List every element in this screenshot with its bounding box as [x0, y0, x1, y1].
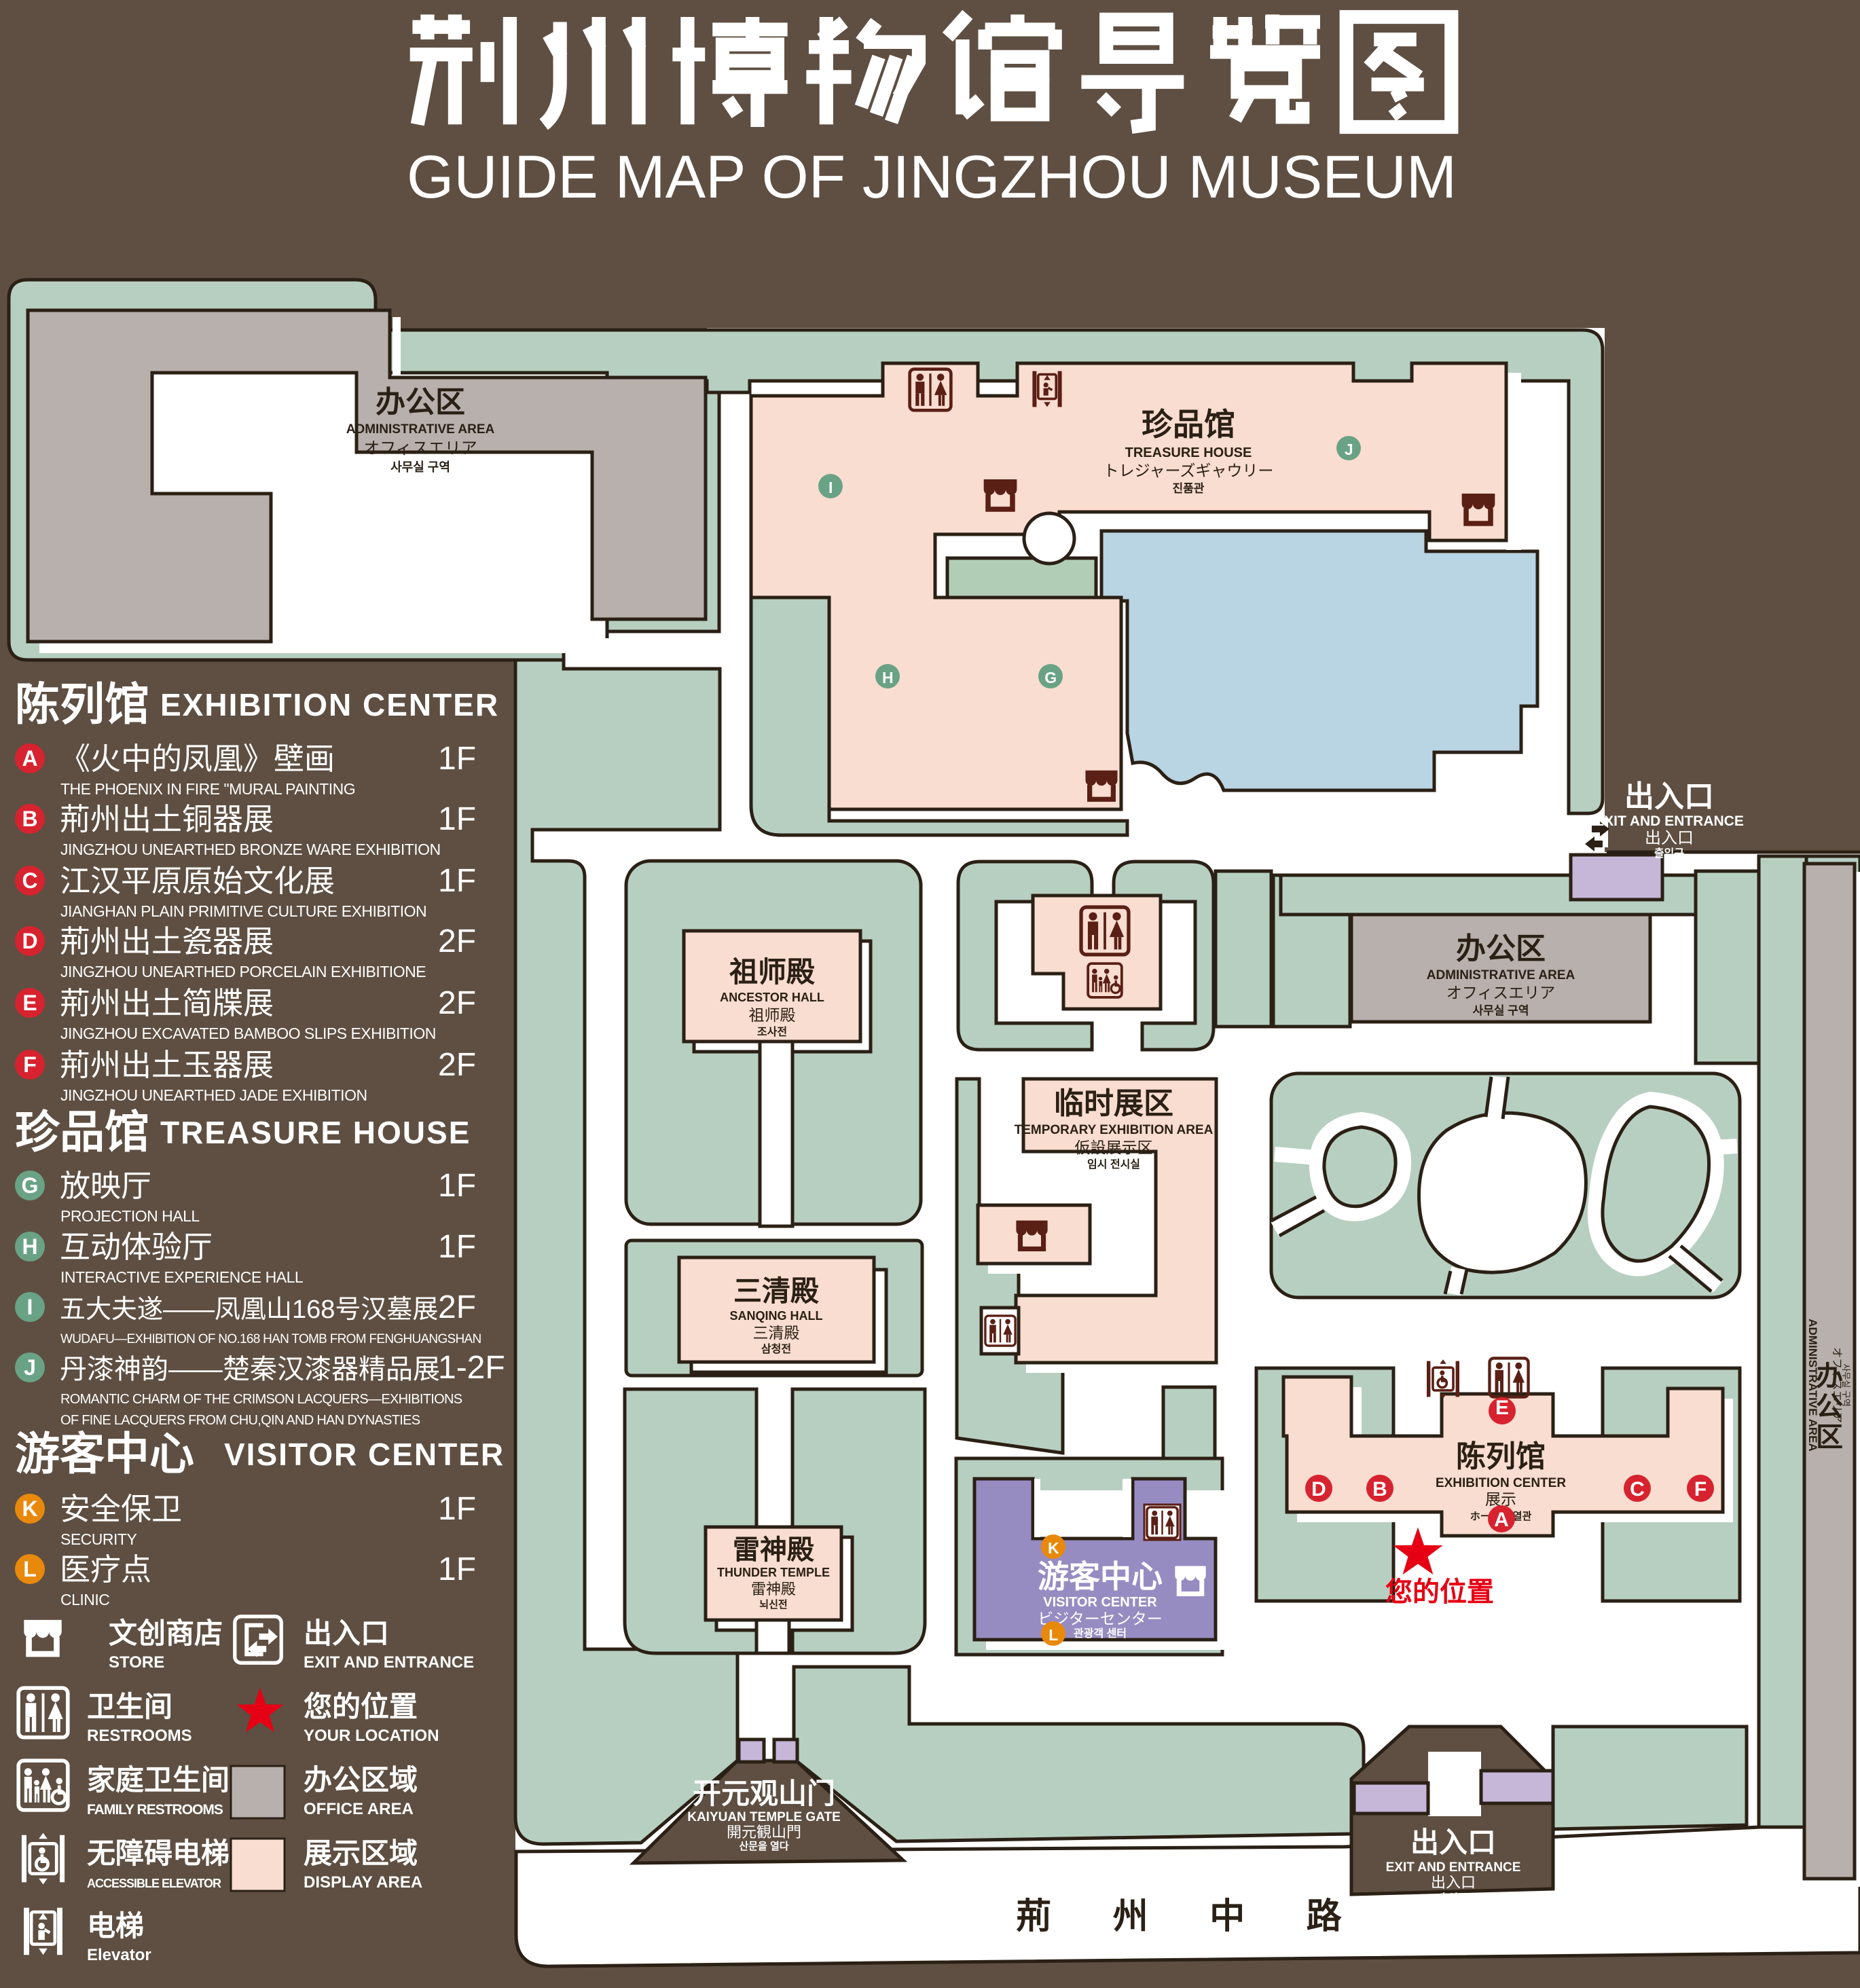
svg-text:祖师殿: 祖师殿	[729, 956, 815, 988]
svg-text:GUIDE MAP OF JINGZHOU MUSEUM: GUIDE MAP OF JINGZHOU MUSEUM	[407, 143, 1457, 210]
svg-text:您的位置: 您的位置	[1385, 1577, 1494, 1607]
svg-text:2F: 2F	[438, 985, 476, 1021]
svg-text:游客中心: 游客中心	[15, 1429, 194, 1479]
svg-text:JINGZHOU UNEARTHED JADE EXHIBI: JINGZHOU UNEARTHED JADE EXHIBITION	[60, 1086, 367, 1104]
svg-text:H: H	[882, 669, 893, 686]
svg-text:출입구: 출입구	[1654, 847, 1684, 860]
svg-text:RESTROOMS: RESTROOMS	[87, 1727, 192, 1745]
svg-text:ADMINISTRATIVE AREA: ADMINISTRATIVE AREA	[1806, 1319, 1819, 1452]
svg-text:オフィスエリア: オフィスエリア	[1446, 984, 1556, 1001]
svg-text:L: L	[23, 1557, 37, 1581]
svg-text:J: J	[24, 1355, 36, 1380]
svg-text:D: D	[22, 929, 37, 953]
svg-text:荊 州 中 路: 荊 州 中 路	[1016, 1897, 1367, 1936]
svg-text:荊州出土简牒展: 荊州出土简牒展	[60, 986, 274, 1020]
svg-text:F: F	[23, 1052, 37, 1077]
svg-text:KAIYUAN TEMPLE GATE: KAIYUAN TEMPLE GATE	[687, 1810, 841, 1824]
svg-text:B: B	[22, 807, 37, 831]
svg-text:オフィスエリア: オフィスエリア	[1831, 1347, 1842, 1423]
svg-text:区: 区	[1816, 1422, 1843, 1452]
svg-text:임시 전시실: 임시 전시실	[1087, 1158, 1140, 1171]
svg-text:江汉平原原始文化展: 江汉平原原始文化展	[60, 864, 335, 898]
svg-text:ADMINISTRATIVE AREA: ADMINISTRATIVE AREA	[346, 422, 495, 437]
svg-text:仮設展示区: 仮設展示区	[1075, 1139, 1153, 1156]
svg-text:出入口: 出入口	[1645, 829, 1694, 847]
svg-text:I: I	[828, 479, 833, 496]
svg-text:ANCESTOR HALL: ANCESTOR HALL	[720, 991, 824, 1004]
svg-text:荊州出土铜器展: 荊州出土铜器展	[60, 802, 274, 836]
svg-text:陈列馆: 陈列馆	[1456, 1440, 1546, 1473]
svg-text:2F: 2F	[438, 1289, 476, 1325]
svg-text:EXIT AND ENTRANCE: EXIT AND ENTRANCE	[1386, 1860, 1521, 1875]
svg-text:ROMANTIC CHARM OF THE CRIMSON: ROMANTIC CHARM OF THE CRIMSON LACQUERS—E…	[60, 1392, 462, 1407]
svg-text:开元观山门: 开元观山门	[693, 1778, 835, 1809]
svg-text:临时展区: 临时展区	[1054, 1087, 1173, 1120]
svg-text:FAMILY RESTROOMS: FAMILY RESTROOMS	[87, 1802, 223, 1818]
svg-text:WUDAFU—EXHIBITION OF NO.168 HA: WUDAFU—EXHIBITION OF NO.168 HAN TOMB FRO…	[60, 1332, 481, 1346]
svg-text:JIANGHAN PLAIN PRIMITIVE CULTU: JIANGHAN PLAIN PRIMITIVE CULTURE EXHIBIT…	[60, 902, 426, 920]
svg-text:TREASURE HOUSE: TREASURE HOUSE	[160, 1115, 471, 1150]
svg-text:산문을 열다: 산문을 열다	[739, 1841, 788, 1852]
svg-text:出入口: 出入口	[1624, 780, 1714, 813]
svg-text:出入口: 出入口	[304, 1617, 389, 1649]
svg-text:电梯: 电梯	[87, 1910, 144, 1942]
svg-text:荊州出土瓷器展: 荊州出土瓷器展	[60, 924, 274, 959]
svg-text:雷神殿: 雷神殿	[751, 1581, 796, 1598]
svg-text:JINGZHOU UNEARTHED BRONZE WARE: JINGZHOU UNEARTHED BRONZE WARE EXHIBITIO…	[60, 841, 441, 858]
svg-text:无障碍电梯: 无障碍电梯	[87, 1837, 230, 1869]
svg-text:E: E	[22, 991, 37, 1015]
svg-text:SECURITY: SECURITY	[60, 1530, 136, 1548]
svg-text:J: J	[1345, 441, 1353, 458]
svg-text:진품관: 진품관	[1173, 482, 1205, 495]
svg-text:オフィスエリア: オフィスエリア	[363, 439, 477, 458]
svg-text:JINGZHOU EXCAVATED BAMBOO SLIP: JINGZHOU EXCAVATED BAMBOO SLIPS EXHIBITI…	[60, 1025, 436, 1042]
svg-text:ADMINISTRATIVE AREA: ADMINISTRATIVE AREA	[1427, 968, 1575, 982]
svg-text:VISITOR CENTER: VISITOR CENTER	[224, 1437, 505, 1472]
svg-text:YOUR LOCATION: YOUR LOCATION	[304, 1727, 439, 1745]
svg-text:1F: 1F	[438, 741, 476, 777]
svg-text:B: B	[1372, 1478, 1387, 1501]
svg-text:G: G	[1044, 669, 1056, 686]
svg-text:安全保卫: 安全保卫	[60, 1492, 182, 1526]
svg-text:1F: 1F	[438, 1229, 476, 1265]
svg-text:Elevator: Elevator	[87, 1946, 151, 1964]
svg-text:祖师殿: 祖师殿	[749, 1006, 796, 1024]
svg-text:荊州出土玉器展: 荊州出土玉器展	[60, 1048, 274, 1082]
svg-text:三清殿: 三清殿	[733, 1275, 819, 1307]
svg-text:JINGZHOU UNEARTHED PORCELAIN E: JINGZHOU UNEARTHED PORCELAIN EXHIBITIONE	[60, 963, 426, 980]
svg-text:1F: 1F	[438, 1168, 476, 1204]
svg-text:관광객 센터: 관광객 센터	[1074, 1627, 1127, 1640]
svg-text:三清殿: 三清殿	[753, 1324, 800, 1342]
svg-text:您的位置: 您的位置	[304, 1691, 418, 1723]
svg-text:INTERACTIVE EXPERIENCE HALL: INTERACTIVE EXPERIENCE HALL	[60, 1268, 304, 1286]
svg-text:卫生间: 卫生间	[87, 1691, 172, 1723]
svg-text:STORE: STORE	[109, 1653, 164, 1672]
svg-text:1F: 1F	[438, 863, 476, 899]
svg-text:A: A	[22, 746, 37, 771]
svg-text:E: E	[1495, 1397, 1509, 1419]
svg-text:丹漆神韵——楚秦汉漆器精品展: 丹漆神韵——楚秦汉漆器精品展	[60, 1355, 440, 1384]
svg-text:珍品馆: 珍品馆	[1142, 407, 1235, 442]
svg-text:뇌신전: 뇌신전	[759, 1599, 787, 1610]
svg-text:L: L	[1048, 1626, 1058, 1644]
svg-text:開元観山門: 開元観山門	[727, 1824, 801, 1841]
svg-text:A: A	[1494, 1509, 1509, 1531]
svg-text:2F: 2F	[438, 1047, 476, 1083]
svg-text:EXHIBITION CENTER: EXHIBITION CENTER	[1436, 1476, 1566, 1490]
svg-text:OF FINE LACQUERS FROM CHU,QIN: OF FINE LACQUERS FROM CHU,QIN AND HAN DY…	[60, 1413, 420, 1428]
svg-text:トレジャーズギャウリー: トレジャーズギャウリー	[1104, 462, 1274, 479]
svg-text:TEMPORARY EXHIBITION AREA: TEMPORARY EXHIBITION AREA	[1015, 1123, 1214, 1137]
svg-text:삼청전: 삼청전	[761, 1342, 791, 1355]
svg-text:CLINIC: CLINIC	[60, 1591, 109, 1608]
svg-text:出入口: 出入口	[1410, 1826, 1496, 1858]
svg-text:EXHIBITION CENTER: EXHIBITION CENTER	[160, 687, 499, 722]
svg-text:1F: 1F	[438, 1551, 476, 1587]
svg-text:游客中心: 游客中心	[1038, 1559, 1163, 1594]
svg-text:VISITOR CENTER: VISITOR CENTER	[1043, 1595, 1157, 1610]
svg-text:DISPLAY AREA: DISPLAY AREA	[304, 1873, 422, 1892]
svg-text:K: K	[1048, 1539, 1059, 1557]
svg-text:THE PHOENIX IN FIRE "MURAL PAI: THE PHOENIX IN FIRE "MURAL PAINTING	[60, 780, 355, 798]
svg-text:2F: 2F	[438, 923, 476, 959]
svg-text:K: K	[22, 1496, 37, 1521]
svg-text:办公区: 办公区	[1456, 932, 1546, 965]
svg-text:TREASURE HOUSE: TREASURE HOUSE	[1125, 445, 1252, 460]
svg-text:조사전: 조사전	[757, 1026, 787, 1038]
svg-text:ACCESSIBLE ELEVATOR: ACCESSIBLE ELEVATOR	[87, 1877, 221, 1890]
svg-text:医疗点: 医疗点	[60, 1552, 151, 1587]
svg-text:출입구: 출입구	[1439, 1892, 1467, 1904]
svg-text:사무실 구역: 사무실 구역	[1473, 1004, 1529, 1017]
svg-text:THUNDER TEMPLE: THUNDER TEMPLE	[717, 1566, 830, 1579]
svg-text:放映厅: 放映厅	[60, 1168, 151, 1203]
svg-text:C: C	[1630, 1478, 1645, 1501]
svg-text:办公区域: 办公区域	[304, 1764, 418, 1796]
svg-text:珍品馆: 珍品馆	[15, 1107, 149, 1157]
svg-text:PROJECTION HALL: PROJECTION HALL	[60, 1207, 200, 1225]
svg-text:五大夫遂——凤凰山168号汉墓展: 五大夫遂——凤凰山168号汉墓展	[60, 1295, 438, 1324]
svg-text:《火中的凤凰》壁画: 《火中的凤凰》壁画	[60, 741, 335, 776]
svg-text:사무실 구역: 사무실 구역	[390, 460, 450, 474]
svg-text:OFFICE AREA: OFFICE AREA	[304, 1800, 414, 1818]
svg-text:C: C	[22, 868, 37, 893]
svg-text:사무실 구역: 사무실 구역	[1841, 1363, 1851, 1406]
svg-text:EXIT AND ENTRANCE: EXIT AND ENTRANCE	[304, 1653, 474, 1672]
svg-text:展示区域: 展示区域	[304, 1837, 418, 1869]
svg-text:H: H	[22, 1234, 37, 1259]
svg-text:I: I	[27, 1295, 33, 1319]
svg-text:雷神殿: 雷神殿	[733, 1535, 814, 1565]
svg-text:D: D	[1311, 1478, 1326, 1501]
svg-text:办公区: 办公区	[376, 386, 465, 419]
svg-text:互动体验厅: 互动体验厅	[60, 1230, 213, 1264]
svg-text:1-2F: 1-2F	[438, 1350, 505, 1386]
svg-text:EXIT AND ENTRANCE: EXIT AND ENTRANCE	[1594, 813, 1744, 829]
svg-text:SANQING HALL: SANQING HALL	[730, 1309, 823, 1323]
svg-text:F: F	[1694, 1478, 1707, 1501]
svg-text:出入口: 出入口	[1431, 1874, 1476, 1891]
svg-text:文创商店: 文创商店	[109, 1617, 223, 1649]
svg-text:1F: 1F	[438, 1491, 476, 1527]
svg-text:G: G	[22, 1173, 39, 1198]
svg-text:家庭卫生间: 家庭卫生间	[87, 1764, 230, 1796]
svg-text:陈列馆: 陈列馆	[15, 679, 149, 729]
svg-text:1F: 1F	[438, 801, 476, 837]
